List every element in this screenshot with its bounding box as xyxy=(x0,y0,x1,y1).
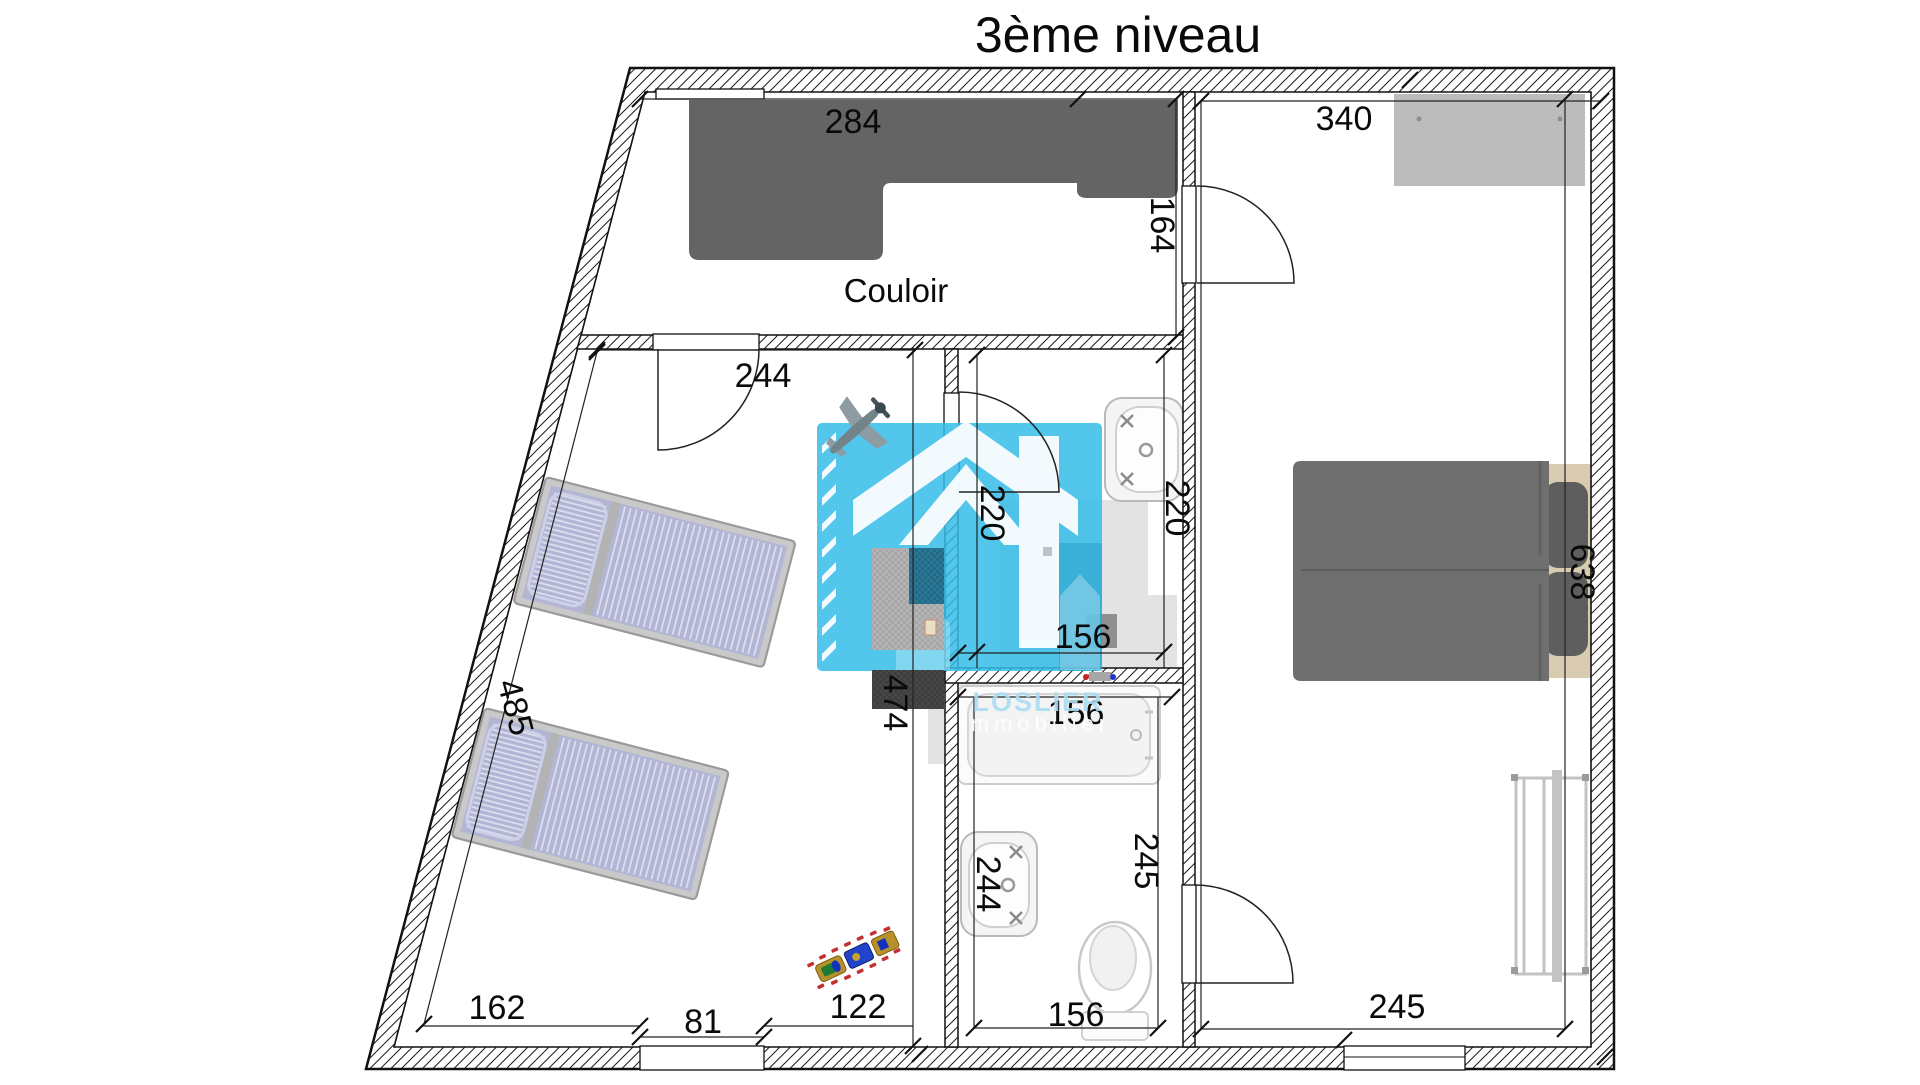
svg-text:3ème niveau: 3ème niveau xyxy=(975,7,1261,63)
svg-text:284: 284 xyxy=(825,103,882,141)
svg-text:156: 156 xyxy=(1048,996,1105,1034)
svg-text:Couloir: Couloir xyxy=(844,272,949,309)
svg-text:220: 220 xyxy=(1158,480,1196,537)
svg-text:81: 81 xyxy=(684,1003,722,1041)
svg-text:156: 156 xyxy=(1055,618,1112,656)
svg-text:245: 245 xyxy=(1127,833,1165,890)
svg-text:244: 244 xyxy=(969,856,1007,913)
svg-text:220: 220 xyxy=(973,485,1011,542)
svg-text:245: 245 xyxy=(1369,988,1426,1026)
svg-text:244: 244 xyxy=(735,357,792,395)
svg-text:164: 164 xyxy=(1143,197,1181,254)
svg-text:474: 474 xyxy=(876,675,914,732)
svg-text:122: 122 xyxy=(830,988,887,1026)
svg-text:162: 162 xyxy=(469,989,526,1027)
svg-text:638: 638 xyxy=(1563,544,1601,601)
svg-text:340: 340 xyxy=(1316,100,1373,138)
svg-text:immobilier: immobilier xyxy=(961,711,1111,736)
